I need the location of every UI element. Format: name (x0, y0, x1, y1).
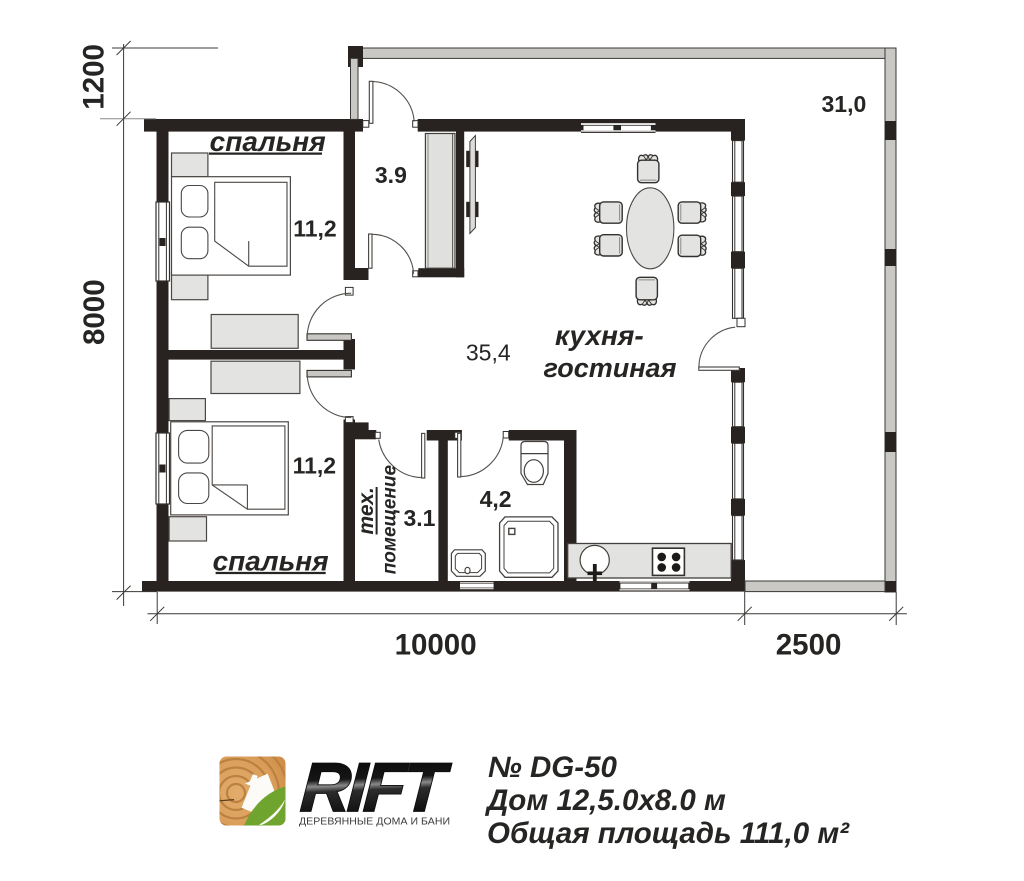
svg-text:Дом 12,5.0x8.0 м: Дом 12,5.0x8.0 м (484, 784, 726, 817)
svg-text:спальня: спальня (213, 545, 329, 576)
svg-text:спальня: спальня (210, 126, 326, 157)
svg-text:помещение: помещение (380, 465, 401, 575)
svg-text:3.9: 3.9 (375, 162, 407, 188)
svg-text:31,0: 31,0 (822, 91, 867, 117)
svg-text:гостиная: гостиная (544, 353, 677, 383)
svg-text:11,2: 11,2 (293, 453, 337, 479)
svg-text:11,2: 11,2 (293, 216, 337, 242)
svg-text:3.1: 3.1 (404, 505, 436, 531)
svg-text:2500: 2500 (776, 629, 842, 662)
svg-text:4,2: 4,2 (480, 486, 512, 512)
svg-text:35,4: 35,4 (466, 340, 511, 366)
svg-text:RIFT: RIFT (299, 748, 454, 826)
svg-text:Общая площадь 111,0 м²: Общая площадь 111,0 м² (487, 817, 850, 850)
svg-text:8000: 8000 (78, 279, 111, 345)
svg-text:№ DG-50: № DG-50 (488, 751, 617, 784)
svg-text:10000: 10000 (395, 628, 477, 661)
svg-text:кухня-: кухня- (555, 320, 644, 351)
svg-text:тех.: тех. (355, 487, 378, 534)
svg-text:1200: 1200 (77, 44, 110, 110)
svg-text:ДЕРЕВЯННЫЕ ДОМА И БАНИ: ДЕРЕВЯННЫЕ ДОМА И БАНИ (299, 816, 450, 828)
